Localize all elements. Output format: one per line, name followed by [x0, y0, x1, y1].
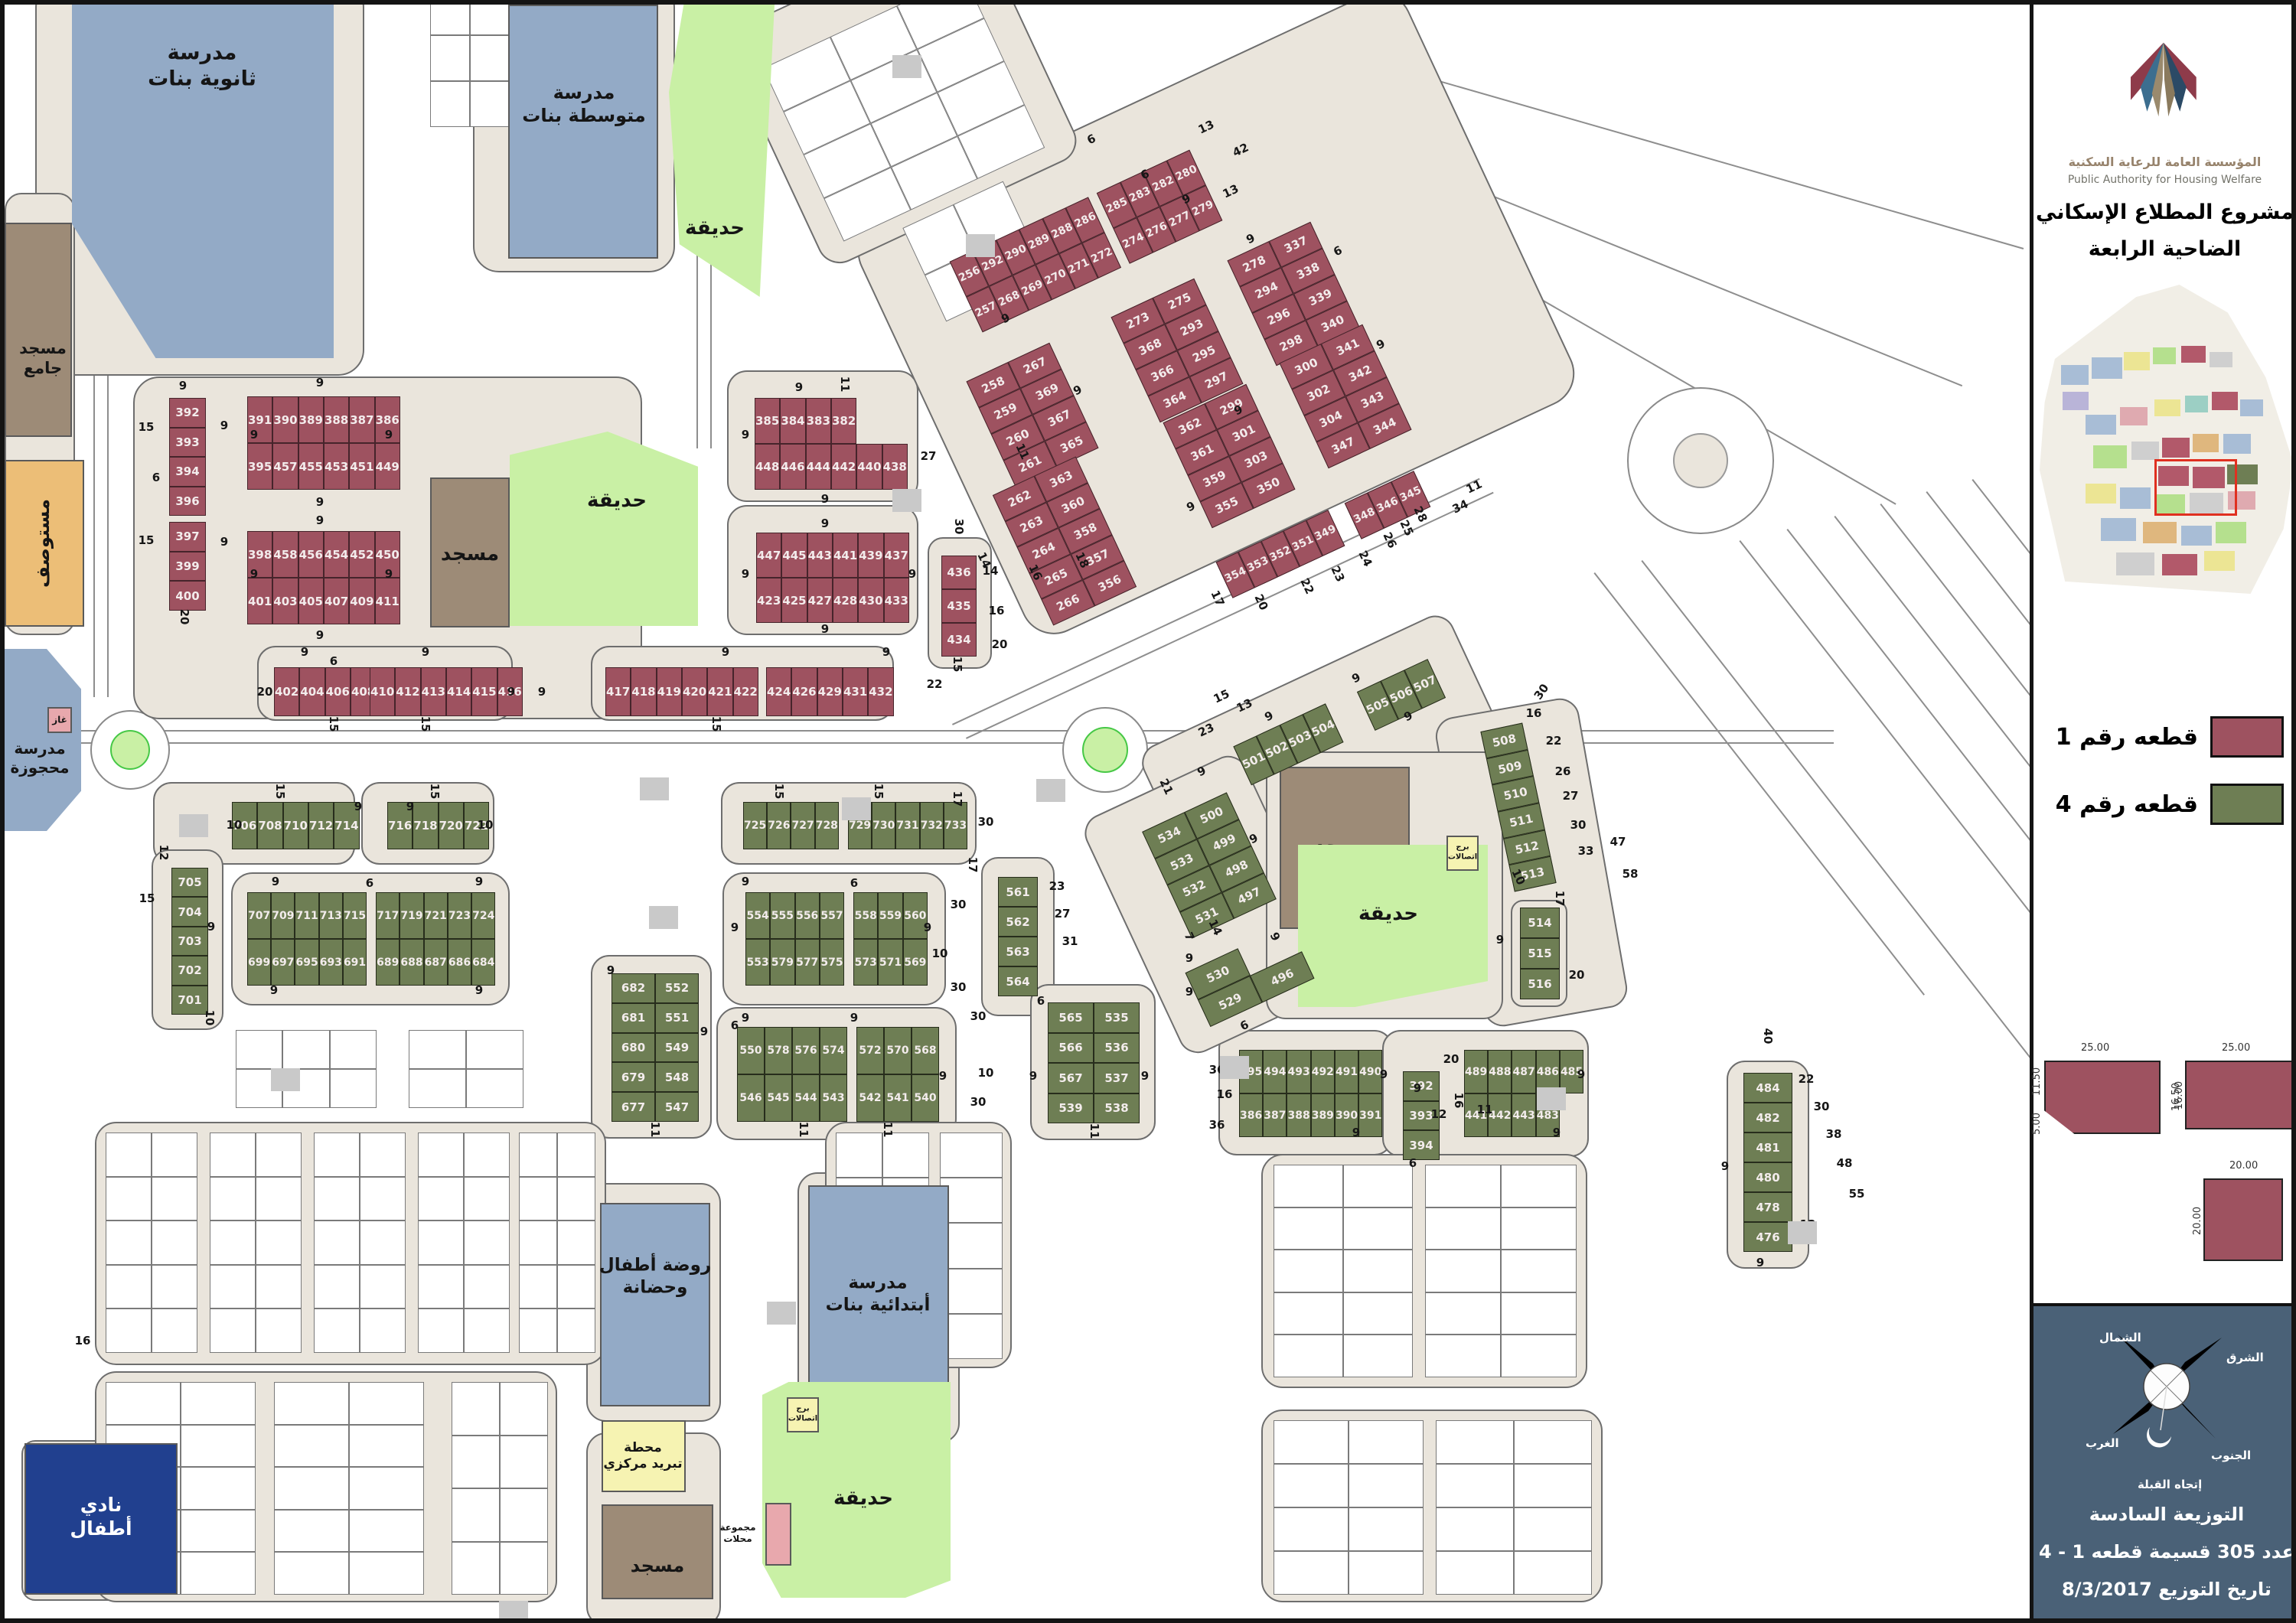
plot-cell: 493 — [1287, 1050, 1310, 1093]
dimension-label: 15 — [1212, 686, 1232, 706]
utility-box — [1036, 779, 1065, 802]
plot-cell-empty — [282, 1030, 329, 1069]
facility-label: حديقة — [833, 1486, 893, 1511]
plot-cell: 571 — [878, 939, 902, 986]
dimension-label: 6 — [152, 471, 160, 484]
plot-cell: 419 — [657, 667, 682, 716]
plot-cell: 476 — [1743, 1222, 1792, 1252]
road-line — [1786, 529, 2030, 1434]
plot-cell: 386 — [1239, 1093, 1263, 1137]
plot-cell: 572 — [856, 1027, 884, 1074]
plot-cell-empty — [152, 1177, 197, 1221]
plot-row: 705 — [171, 868, 208, 897]
plot-cell: 391 — [1358, 1093, 1382, 1137]
plot-cell-empty — [1501, 1335, 1577, 1377]
facility-label: محطة تبريد مركزي — [603, 1440, 682, 1473]
dimension-label: 6 — [330, 654, 338, 668]
unlabeled-plot-grid — [314, 1133, 406, 1353]
plot-cell-empty — [274, 1510, 349, 1553]
dimension-label: 15 — [139, 420, 155, 434]
plot-row: 396 — [169, 487, 206, 517]
plot-gap — [844, 939, 853, 986]
dimension-label: 9 — [1496, 933, 1504, 947]
dimension-label: 58 — [1623, 867, 1639, 881]
dimension-label: 20 — [1251, 592, 1270, 613]
plot-cell: 405 — [298, 578, 324, 624]
plot-cell: 686 — [448, 939, 471, 986]
dimension-label: 20 — [178, 609, 191, 625]
plot-gap — [367, 892, 376, 939]
dimension-label: 48 — [1837, 1156, 1853, 1170]
dimension-label: 9 — [301, 645, 308, 659]
minimap-block — [2092, 357, 2122, 379]
plot-cell: 387 — [349, 396, 374, 443]
plot-cell-empty — [1274, 1292, 1343, 1335]
dimension-label: 9 — [1029, 1069, 1037, 1083]
dimension-label: 30 — [970, 1009, 987, 1023]
plot-cell-empty — [1274, 1551, 1349, 1595]
plot-row: 436 — [941, 556, 977, 589]
road-line — [1739, 540, 2030, 1445]
plot-cell-empty — [409, 1069, 466, 1108]
plot-cell: 443 — [1512, 1093, 1535, 1137]
roundabout — [110, 730, 150, 770]
plot-cell: 455 — [298, 443, 324, 490]
plot-cell: 390 — [272, 396, 298, 443]
plot-cell: 454 — [324, 531, 349, 578]
plot-cell-empty — [500, 1542, 548, 1595]
plot-cell-empty — [314, 1265, 360, 1309]
plot-cell: 546 — [737, 1074, 765, 1122]
plot-row: 699697695693691689688687686684 — [247, 939, 492, 986]
dimension-label: 31 — [1062, 934, 1078, 948]
plot-cell: 540 — [912, 1074, 939, 1122]
minimap-block — [2193, 434, 2219, 452]
plot-cell-empty — [1425, 1335, 1501, 1377]
plot-group-col-436: 436435434 — [941, 556, 977, 657]
dimension-label: 9 — [1756, 1256, 1764, 1269]
distribution-title: التوزيعة السادسة — [2033, 1496, 2296, 1533]
dimension-label: 9 — [1380, 1067, 1388, 1081]
dimension-label: 10 — [203, 1010, 217, 1026]
plot-cell-empty — [452, 1382, 500, 1436]
dimension-label: 9 — [538, 685, 546, 699]
dimension-label: 22 — [1546, 734, 1562, 748]
plot-cell: 713 — [319, 892, 343, 939]
plot-cell-empty — [106, 1221, 152, 1265]
minimap-block — [2143, 522, 2177, 543]
dimension-label: 47 — [1610, 835, 1626, 849]
plot-cell-empty — [106, 1265, 152, 1309]
dimension-label: 33 — [1578, 844, 1594, 858]
plot-cell: 409 — [349, 578, 374, 624]
plot-cell-empty — [152, 1133, 197, 1177]
plot-cell-empty — [519, 1221, 557, 1265]
plot-cell-empty — [1343, 1207, 1413, 1250]
plot-cell: 719 — [400, 892, 423, 939]
dimension-label: 36 — [1209, 1118, 1225, 1132]
road-line — [1641, 560, 2030, 1103]
plot-row: 398458456454452450 — [247, 531, 394, 578]
dimension-label: 27 — [1055, 907, 1071, 921]
plot-cell: 543 — [820, 1074, 847, 1122]
dimension-label: 16 — [1526, 706, 1542, 720]
plot-cell: 727 — [791, 802, 814, 849]
unlabeled-plot-grid — [418, 1133, 510, 1353]
dimension-label: 16 — [1217, 1087, 1233, 1101]
plot-cell-empty — [409, 1030, 466, 1069]
dimension-label: 17 — [966, 857, 980, 873]
plot-row: 565535 — [1048, 1002, 1140, 1033]
plot-cell: 537 — [1094, 1063, 1140, 1093]
unlabeled-plot-grid — [519, 1133, 595, 1353]
dimension-label: 38 — [1826, 1127, 1842, 1141]
facility-label: مجموعة محلات — [719, 1522, 755, 1545]
plot-cell: 428 — [833, 578, 858, 623]
plot-cell-empty — [940, 1178, 1003, 1223]
plot-cell: 385 — [755, 398, 780, 444]
plot-row: 482 — [1743, 1103, 1792, 1133]
plot-cell-empty — [106, 1382, 181, 1425]
plot-cell: 401 — [247, 578, 272, 624]
plot-cell-empty — [1343, 1165, 1413, 1207]
dimension-label: 9 — [385, 567, 393, 581]
plot-cell: 553 — [745, 939, 770, 986]
plot-cell: 709 — [271, 892, 295, 939]
plot-cell: 707 — [247, 892, 271, 939]
plot-row: 385384383382 — [755, 398, 853, 444]
unlabeled-plot-grid — [1274, 1420, 1424, 1595]
plot-cell: 514 — [1520, 908, 1560, 938]
plot-cell: 437 — [884, 533, 909, 578]
unlabeled-plot-grid — [1274, 1165, 1413, 1377]
plot-gap — [847, 1027, 856, 1074]
plot-cell-empty — [360, 1133, 406, 1177]
dimension-label: 9 — [731, 921, 739, 934]
dimension-label: 16 — [75, 1334, 91, 1348]
roundabout — [1082, 727, 1128, 773]
plot-cell: 732 — [920, 802, 944, 849]
facility-shops-group — [765, 1503, 791, 1566]
plot-cell: 490 — [1358, 1050, 1382, 1093]
authority-name-english: Public Authority for Housing Welfare — [2033, 174, 2296, 186]
plot-gap — [844, 892, 853, 939]
plot-cell-empty — [1425, 1207, 1501, 1250]
facility-school-middle-girls — [508, 5, 658, 259]
plot-cell: 451 — [349, 443, 374, 490]
plot-group-strip-716: 716718720722 — [387, 802, 482, 849]
plot-cell-empty — [1514, 1464, 1592, 1507]
plot-cell: 388 — [324, 396, 349, 443]
plot-cell-empty — [500, 1488, 548, 1542]
plot-cell: 693 — [319, 939, 343, 986]
facility-label: حديقة — [1358, 901, 1418, 927]
plot-cell-empty — [940, 1223, 1003, 1268]
dimension-label: 15 — [428, 784, 442, 800]
plot-group-col-561: 561562563564 — [998, 877, 1038, 996]
dim-label: 25.00 — [2081, 1042, 2109, 1054]
facility-label: حديقة — [587, 488, 647, 513]
plot-cell: 704 — [171, 897, 208, 926]
unlabeled-plot-grid — [210, 1133, 302, 1353]
dimension-label: 12 — [1431, 1107, 1447, 1121]
plot-cell-empty — [349, 1467, 424, 1510]
plot-cell-empty — [274, 1552, 349, 1595]
plot-cell-empty — [1349, 1551, 1424, 1595]
legend-label-plot1: قطعه رقم 1 — [2056, 724, 2198, 751]
dim-label: 5.00 — [2031, 1113, 2043, 1135]
plot-cell: 561 — [998, 877, 1038, 907]
minimap-block — [2154, 399, 2180, 416]
plot-cell: 387 — [1263, 1093, 1287, 1137]
plot-cell: 447 — [756, 533, 781, 578]
plot-cell: 480 — [1743, 1162, 1792, 1192]
unlabeled-plot-grid — [1425, 1165, 1577, 1377]
plot-group-strip-417: 417418419420421422 — [605, 667, 739, 716]
plot-cell-empty — [256, 1133, 302, 1177]
plot-cell: 720 — [439, 802, 464, 849]
plot-cell-empty — [500, 1382, 548, 1436]
facility-park-top — [669, 5, 775, 297]
dimension-label: 26 — [1380, 530, 1399, 551]
plot-row: 478 — [1743, 1192, 1792, 1222]
plot-cell: 688 — [400, 939, 423, 986]
dim-label: 16.00 — [2174, 1081, 2185, 1110]
plot-cell: 689 — [376, 939, 400, 986]
plot-cell-empty — [418, 1309, 464, 1353]
dimension-label: 9 — [882, 645, 890, 659]
master-plan-map: مدرسة ثانوية بناتمسجد جامعمدرسة متوسطة ب… — [5, 5, 2030, 1623]
dimension-label: 22 — [1799, 1072, 1815, 1086]
dimension-label: 9 — [475, 875, 483, 888]
plot-cell: 566 — [1048, 1033, 1094, 1064]
plot-cell: 422 — [733, 667, 758, 716]
plot-row: 682552 — [612, 973, 699, 1003]
dimension-label: 17 — [1553, 891, 1567, 907]
plot-cell: 456 — [298, 531, 324, 578]
plot-cell-empty — [181, 1382, 256, 1425]
plot-cell-empty — [330, 1069, 377, 1108]
dimension-label: 9 — [1577, 1067, 1585, 1081]
dimension-label: 9 — [821, 492, 829, 506]
dimension-label: 34 — [1450, 497, 1471, 516]
plot-cell: 424 — [766, 667, 791, 716]
dimension-label: 30 — [1814, 1100, 1830, 1113]
dimension-label: 9 — [422, 645, 429, 659]
housing-distribution-map-poster: مدرسة ثانوية بناتمسجد جامعمدرسة متوسطة ب… — [0, 0, 2296, 1623]
facility-kindergarten — [600, 1203, 710, 1406]
plot-cell: 575 — [820, 939, 844, 986]
plot-cell-empty — [1425, 1165, 1501, 1207]
plot-cell: 452 — [349, 531, 374, 578]
plot-group-strip-424: 424426429431432 — [766, 667, 878, 716]
plot-row: 515 — [1520, 938, 1560, 969]
plot-cell-empty — [274, 1382, 349, 1425]
compass-qibla-label: إتجاه القبلة — [2138, 1478, 2202, 1491]
plot-cell: 388 — [1287, 1093, 1310, 1137]
dimension-label: 24 — [1355, 549, 1375, 569]
dimension-label: 11 — [1088, 1123, 1101, 1139]
plot-cell: 691 — [343, 939, 367, 986]
plot-cell: 430 — [858, 578, 883, 623]
plot-cell: 723 — [448, 892, 471, 939]
plot-row: 392 — [169, 398, 206, 428]
plot-cell: 404 — [299, 667, 325, 716]
project-title: مشروع المطلاع الإسكاني — [2033, 200, 2296, 224]
dimension-label: 16 — [989, 604, 1005, 618]
dim-label: 20.00 — [2229, 1160, 2258, 1172]
plot-cell: 710 — [283, 802, 308, 849]
dimension-label: 16 — [1452, 1093, 1466, 1109]
plot-cell-empty — [210, 1177, 256, 1221]
plot-cell: 547 — [655, 1092, 699, 1122]
plot-cell: 578 — [765, 1027, 792, 1074]
plot-cell: 443 — [807, 533, 833, 578]
minimap-block — [2153, 347, 2176, 364]
plot-cell-empty — [464, 1309, 510, 1353]
plot-cell: 384 — [780, 398, 805, 444]
dimension-label: 15 — [709, 716, 723, 732]
plot-group-strip-410: 410412413414415416 — [370, 667, 503, 716]
plot-cell: 536 — [1094, 1033, 1140, 1064]
plot-row: 681551 — [612, 1003, 699, 1033]
minimap-block — [2162, 438, 2190, 458]
minimap-block — [2223, 434, 2251, 454]
plot-cell-empty — [1274, 1464, 1349, 1507]
unlabeled-plot-grid — [452, 1382, 548, 1595]
dimension-label: 30 — [1531, 681, 1552, 702]
dimension-label: 9 — [850, 1011, 858, 1025]
road-line — [1834, 516, 2030, 1421]
plot-cell-empty — [418, 1133, 464, 1177]
plot-gap — [847, 1074, 856, 1122]
plot-cell: 565 — [1048, 1002, 1094, 1033]
utility-box — [1220, 1056, 1249, 1079]
dim-label: 25.00 — [2222, 1042, 2250, 1054]
plot-cell-empty — [1274, 1250, 1343, 1292]
plot-cell-empty — [1514, 1507, 1592, 1551]
plot-cell: 403 — [272, 578, 298, 624]
plot-cell: 570 — [884, 1027, 912, 1074]
minimap-block — [2216, 522, 2246, 543]
dimension-label: 11 — [648, 1122, 662, 1138]
plot-cell: 715 — [343, 892, 367, 939]
plot-row: 495494493492491490 — [1239, 1050, 1375, 1093]
plot-cell: 680 — [612, 1033, 655, 1063]
dimension-label: 9 — [924, 921, 931, 934]
plot-cell-empty — [430, 5, 470, 35]
plot-cell: 705 — [171, 868, 208, 897]
plot-group-blk-550: 5505785765745725705685465455445435425415… — [737, 1027, 939, 1122]
authority-name-arabic: المؤسسة العامة للرعاية السكنية — [2033, 155, 2296, 169]
utility-box — [842, 797, 871, 820]
plot-cell: 703 — [171, 927, 208, 956]
plot-row: 476 — [1743, 1222, 1792, 1252]
plot-area-line: مساحة القسيمة (400 م2) — [2033, 1609, 2296, 1623]
plot-group-strip-402: 402404406408 — [274, 667, 363, 716]
plot-cell: 432 — [868, 667, 893, 716]
dimension-label: 27 — [921, 449, 937, 463]
plot-cell-empty — [210, 1133, 256, 1177]
side-panel: المؤسسة العامة للرعاية السكنية Public Au… — [2030, 5, 2296, 1623]
plot-cell-empty — [1436, 1551, 1514, 1595]
plot-cell: 429 — [817, 667, 843, 716]
dimension-label: 9 — [1186, 985, 1193, 999]
plot-row: 417418419420421422 — [605, 667, 739, 716]
dimension-label: 15 — [872, 784, 885, 800]
utility-box — [1788, 1221, 1817, 1244]
dimension-label: 9 — [406, 800, 414, 813]
dimension-label: 15 — [419, 716, 432, 732]
plot-cell-empty — [1274, 1165, 1343, 1207]
dimension-label: 9 — [1141, 1069, 1149, 1083]
dimension-label: 11 — [881, 1122, 895, 1138]
plot-cell-empty — [940, 1269, 1003, 1314]
plot-cell: 708 — [257, 802, 282, 849]
plot-cell: 695 — [295, 939, 318, 986]
plot-cell: 567 — [1048, 1063, 1094, 1093]
plot-group-col-392: 392393394396 — [169, 398, 206, 516]
plot-cell-empty — [464, 1265, 510, 1309]
facility-label: روضة أطفال وحضانة — [599, 1254, 711, 1299]
plot-cell: 421 — [707, 667, 732, 716]
plot-row: 480 — [1743, 1162, 1792, 1192]
plot-cell-empty — [1436, 1507, 1514, 1551]
plot-cell-empty — [500, 1436, 548, 1489]
plot-cell: 515 — [1520, 938, 1560, 969]
plot-row: 434 — [941, 623, 977, 657]
plot-row: 401403405407409411 — [247, 578, 394, 624]
plot-cell: 399 — [169, 552, 206, 582]
plot-cell-empty — [210, 1265, 256, 1309]
plot-row: 391390389388387386 — [247, 396, 394, 443]
plot-cell-empty — [557, 1177, 595, 1221]
dimension-label: 9 — [742, 428, 749, 442]
dimension-label: 11 — [1477, 1103, 1493, 1116]
plot-cell: 538 — [1094, 1093, 1140, 1124]
dimension-label: 9 — [1414, 1081, 1421, 1095]
plot-cell: 568 — [912, 1027, 939, 1074]
utility-box — [767, 1302, 796, 1325]
plot-cell: 725 — [743, 802, 767, 849]
utility-box — [1537, 1087, 1566, 1110]
plot-cell: 458 — [272, 531, 298, 578]
plot-cell-empty — [464, 1133, 510, 1177]
facility-park-central — [510, 432, 698, 626]
dimension-label: 17 — [1208, 588, 1227, 609]
dimension-label: 27 — [1563, 789, 1579, 803]
facility-label: مسجد — [441, 542, 499, 567]
compass-south-label: الجنوب — [2211, 1449, 2251, 1462]
minimap-block — [2131, 442, 2159, 460]
minimap-block — [2185, 396, 2208, 412]
plot-cell: 436 — [941, 556, 977, 589]
dimension-label: 6 — [366, 876, 373, 890]
minimap-block — [2120, 487, 2151, 509]
plot-row: 424426429431432 — [766, 667, 878, 716]
overview-minimap — [2040, 285, 2294, 594]
plot-cell: 397 — [169, 522, 206, 552]
minimap-block — [2063, 392, 2089, 410]
dimension-label: 9 — [939, 1069, 947, 1083]
plot-cell: 457 — [272, 443, 298, 490]
plot-cell: 442 — [831, 444, 856, 490]
plot-cell: 542 — [856, 1074, 884, 1122]
plot-cell-empty — [256, 1309, 302, 1353]
facility-label: مدرسة أبتدائية بنات — [826, 1272, 931, 1316]
plot-cell: 552 — [655, 973, 699, 1003]
dimension-label: 22 — [1297, 576, 1316, 597]
